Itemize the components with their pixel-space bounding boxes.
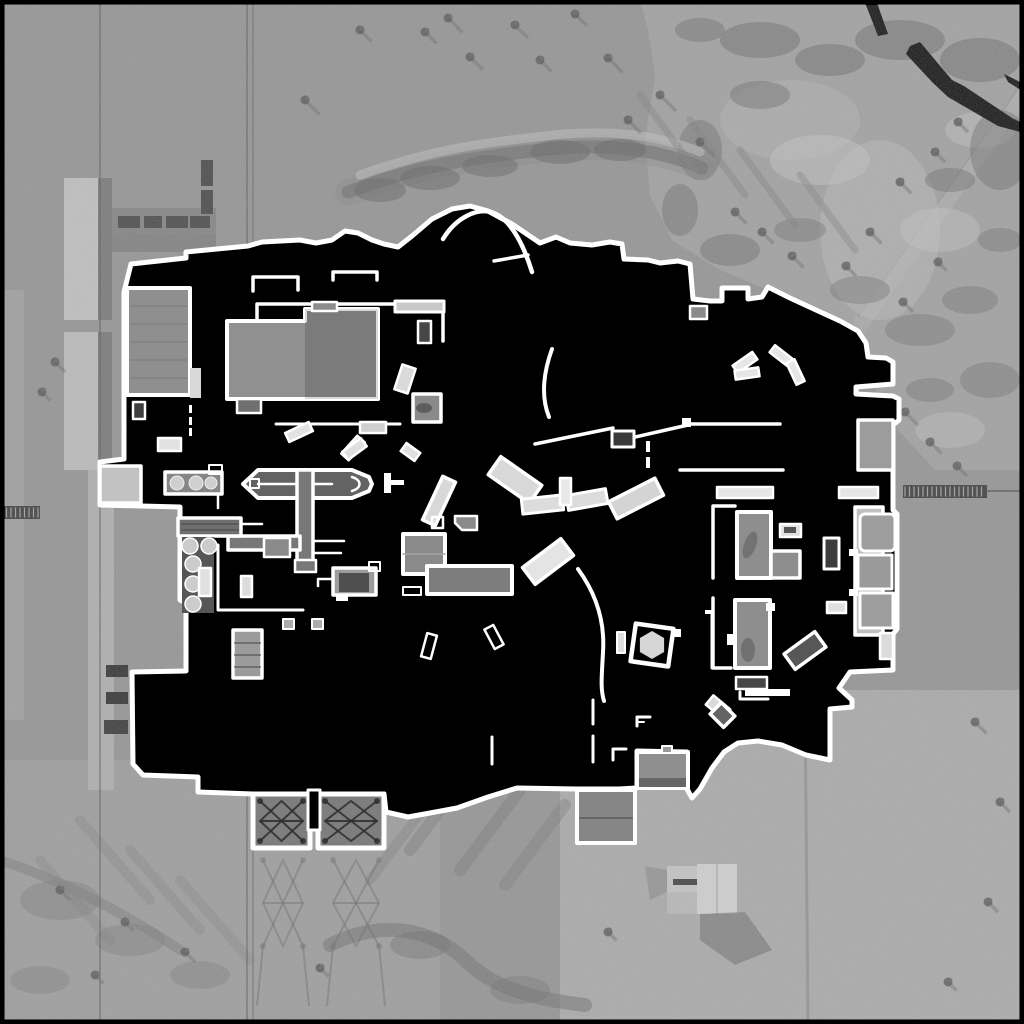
game-map-overview [0, 0, 1024, 1024]
playable-area-mask [100, 206, 899, 817]
map-canvas [0, 0, 1024, 1024]
